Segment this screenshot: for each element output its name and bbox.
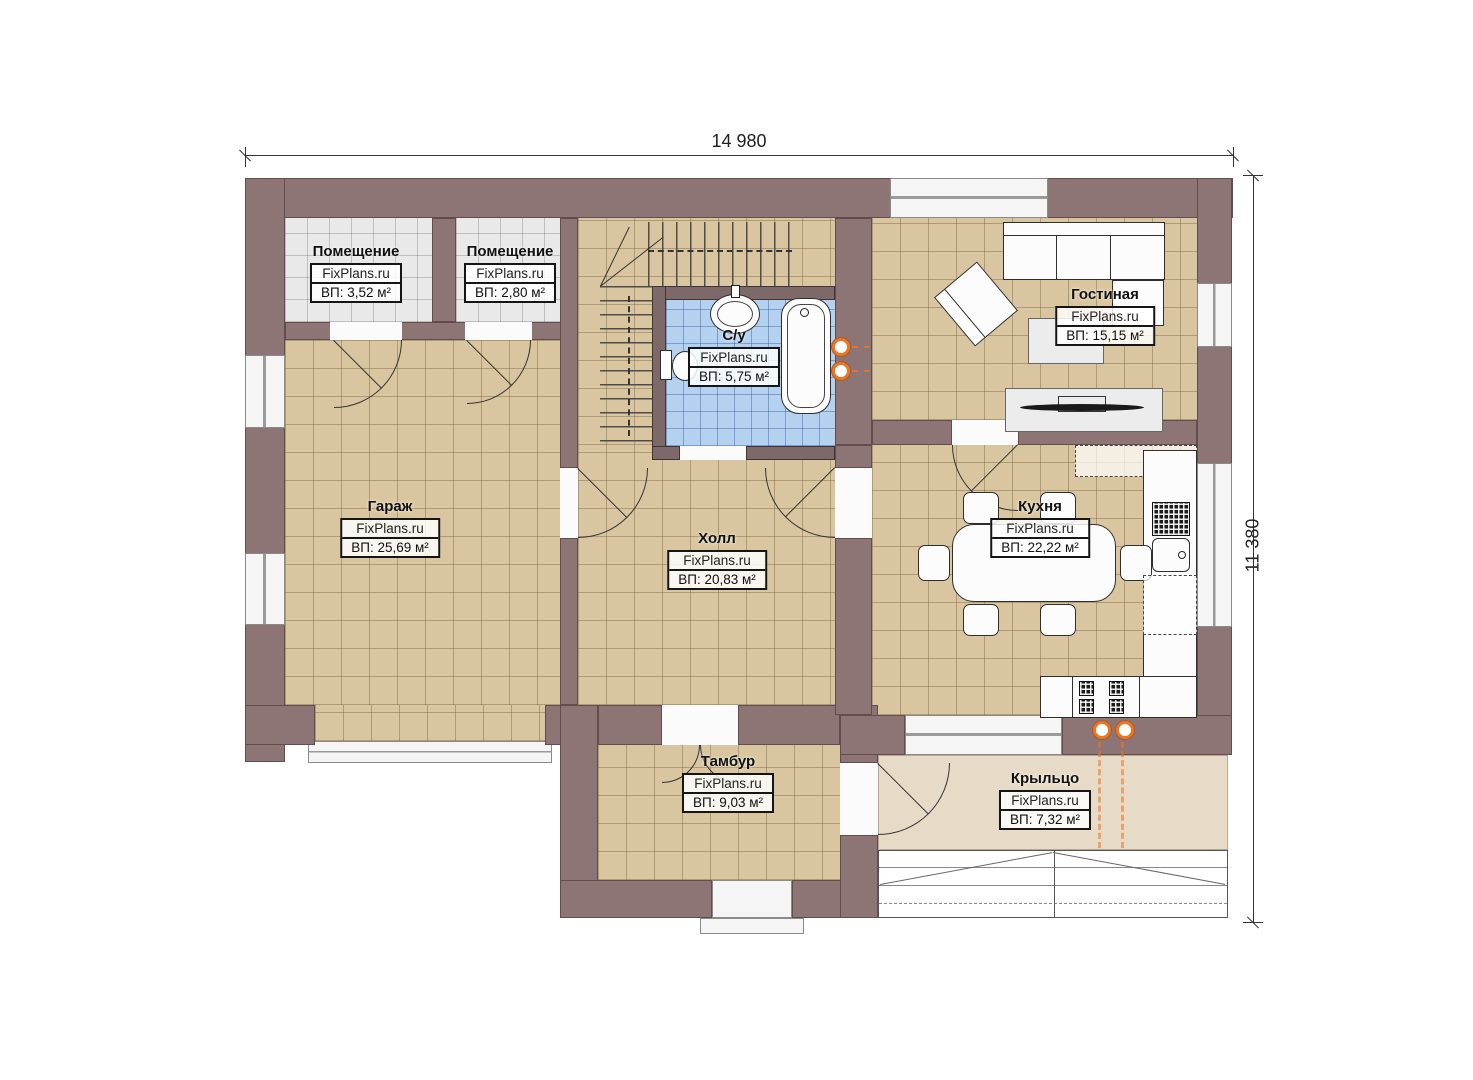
- watermark-text: FixPlans.ru: [312, 265, 400, 284]
- wall: [840, 715, 905, 755]
- burner-icon: [1109, 699, 1124, 714]
- window: [890, 178, 1048, 218]
- burner-icon: [1079, 699, 1094, 714]
- room-area: ВП: 5,75 м²: [690, 368, 778, 385]
- room-label-garage: Гараж FixPlans.ru ВП: 25,69 м²: [340, 498, 440, 558]
- room-label-vestibule: Тамбур FixPlans.ru ВП: 9,03 м²: [682, 753, 774, 813]
- sink-drainer: [1152, 502, 1190, 536]
- label-box: FixPlans.ru ВП: 20,83 м²: [667, 550, 767, 590]
- wall: [598, 705, 662, 745]
- stairs-guide-line: [628, 296, 630, 436]
- room-name: Помещение: [310, 243, 402, 260]
- bathroom-door-opening: [680, 446, 746, 460]
- room-name: Кухня: [990, 498, 1090, 515]
- burner-icon: [1109, 681, 1124, 696]
- flue-icon: [1093, 721, 1111, 739]
- flue-vent-line: [1121, 742, 1124, 848]
- room-area: ВП: 20,83 м²: [669, 571, 765, 588]
- upper-cabinet: [1143, 575, 1197, 635]
- watermark-text: FixPlans.ru: [669, 552, 765, 571]
- room-name: Холл: [667, 530, 767, 547]
- label-box: FixPlans.ru ВП: 22,22 м²: [990, 518, 1090, 558]
- drain-icon: [800, 308, 809, 317]
- room-name: Гараж: [340, 498, 440, 515]
- room-area: ВП: 25,69 м²: [342, 539, 438, 556]
- faucet-icon: [731, 285, 740, 298]
- room-label-storage1: Помещение FixPlans.ru ВП: 3,52 м²: [310, 243, 402, 303]
- wall: [835, 218, 872, 445]
- room-name: Тамбур: [682, 753, 774, 770]
- wall: [738, 705, 840, 745]
- room-area: ВП: 2,80 м²: [466, 284, 554, 301]
- room-label-porch: Крыльцо FixPlans.ru ВП: 7,32 м²: [999, 770, 1091, 830]
- window: [905, 715, 1062, 755]
- faucet-icon: [1178, 551, 1186, 559]
- label-box: FixPlans.ru ВП: 25,69 м²: [340, 518, 440, 558]
- wall: [285, 322, 578, 340]
- window: [1197, 463, 1232, 627]
- kitchen-sink: [1152, 538, 1190, 572]
- watermark-text: FixPlans.ru: [1001, 792, 1089, 811]
- burner-icon: [1079, 681, 1094, 696]
- flue-vent-line: [852, 370, 870, 372]
- step-line: [879, 885, 1227, 886]
- garage-door-threshold: [315, 705, 545, 741]
- flue-icon: [832, 362, 850, 380]
- wall: [245, 178, 285, 762]
- sofa-cushion-divider: [1056, 235, 1057, 279]
- watermark-text: FixPlans.ru: [466, 265, 554, 284]
- watermark-text: FixPlans.ru: [690, 349, 778, 368]
- room-area: ВП: 3,52 м²: [312, 284, 400, 301]
- wall: [835, 445, 872, 468]
- room-area: ВП: 15,15 м²: [1057, 327, 1153, 344]
- wall: [835, 538, 872, 715]
- room-area: ВП: 9,03 м²: [684, 794, 772, 811]
- sofa-cushion-divider: [1110, 235, 1111, 279]
- bathtub: [781, 298, 831, 414]
- toilet-tank: [660, 350, 672, 380]
- step-center-line: [1054, 851, 1055, 917]
- wall: [840, 835, 878, 918]
- wall: [560, 880, 712, 918]
- window: [245, 553, 285, 625]
- watermark-text: FixPlans.ru: [992, 520, 1088, 539]
- chair: [1040, 604, 1076, 636]
- stairs-cut-line: [648, 250, 792, 252]
- wall: [1062, 715, 1232, 755]
- garage-door: [308, 741, 552, 763]
- wall: [872, 420, 952, 445]
- back-stoop: [700, 918, 804, 934]
- window: [1197, 283, 1232, 347]
- room-label-storage2: Помещение FixPlans.ru ВП: 2,80 м²: [464, 243, 556, 303]
- back-door-opening: [712, 880, 792, 918]
- label-box: FixPlans.ru ВП: 9,03 м²: [682, 773, 774, 813]
- door-opening: [560, 468, 578, 538]
- room-name: С/у: [688, 327, 780, 344]
- step-line: [879, 867, 1227, 868]
- window: [245, 355, 285, 428]
- wall: [560, 218, 578, 468]
- room-label-kitchen: Кухня FixPlans.ru ВП: 22,22 м²: [990, 498, 1090, 558]
- floor-plan-canvas: Помещение FixPlans.ru ВП: 3,52 м² Помеще…: [0, 0, 1473, 1080]
- door-opening: [662, 705, 738, 745]
- sofa: [1003, 222, 1165, 280]
- room-label-living: Гостиная FixPlans.ru ВП: 15,15 м²: [1055, 286, 1155, 346]
- room-name: Крыльцо: [999, 770, 1091, 787]
- wall: [245, 705, 315, 745]
- room-area: ВП: 22,22 м²: [992, 539, 1088, 556]
- watermark-text: FixPlans.ru: [684, 775, 772, 794]
- entrance-door-opening: [840, 763, 878, 835]
- label-box: FixPlans.ru ВП: 15,15 м²: [1055, 306, 1155, 346]
- washbasin-bowl: [717, 301, 753, 327]
- flue-icon: [1116, 721, 1134, 739]
- flue-vent-line: [1098, 742, 1101, 848]
- door-opening: [465, 322, 532, 340]
- watermark-text: FixPlans.ru: [1057, 308, 1153, 327]
- flue-vent-line: [852, 346, 870, 348]
- wall: [746, 446, 835, 460]
- wall: [432, 218, 456, 322]
- stairs-upper-flight: [648, 222, 792, 286]
- chair: [918, 545, 950, 581]
- room-label-bathroom: С/у FixPlans.ru ВП: 5,75 м²: [688, 327, 780, 387]
- porch-steps: [878, 850, 1228, 918]
- door-opening: [835, 468, 872, 538]
- room-name: Гостиная: [1055, 286, 1155, 303]
- wall: [245, 178, 1233, 218]
- door-opening: [330, 322, 402, 340]
- label-box: FixPlans.ru ВП: 3,52 м²: [310, 263, 402, 303]
- label-box: FixPlans.ru ВП: 7,32 м²: [999, 790, 1091, 830]
- watermark-text: FixPlans.ru: [342, 520, 438, 539]
- chair: [963, 604, 999, 636]
- sofa-back: [1004, 223, 1164, 236]
- dimension-height-label: 11 380: [1243, 496, 1264, 596]
- label-box: FixPlans.ru ВП: 5,75 м²: [688, 347, 780, 387]
- room-label-hall: Холл FixPlans.ru ВП: 20,83 м²: [667, 530, 767, 590]
- wall: [560, 538, 578, 705]
- bathtub-basin: [787, 304, 825, 408]
- step-line: [879, 903, 1227, 904]
- flue-icon: [832, 338, 850, 356]
- tv-screen: [1020, 404, 1144, 411]
- dimension-width-label: 14 980: [689, 131, 789, 152]
- label-box: FixPlans.ru ВП: 2,80 м²: [464, 263, 556, 303]
- dimension-line-top: [245, 155, 1233, 156]
- wall: [652, 446, 680, 460]
- room-name: Помещение: [464, 243, 556, 260]
- room-area: ВП: 7,32 м²: [1001, 811, 1089, 828]
